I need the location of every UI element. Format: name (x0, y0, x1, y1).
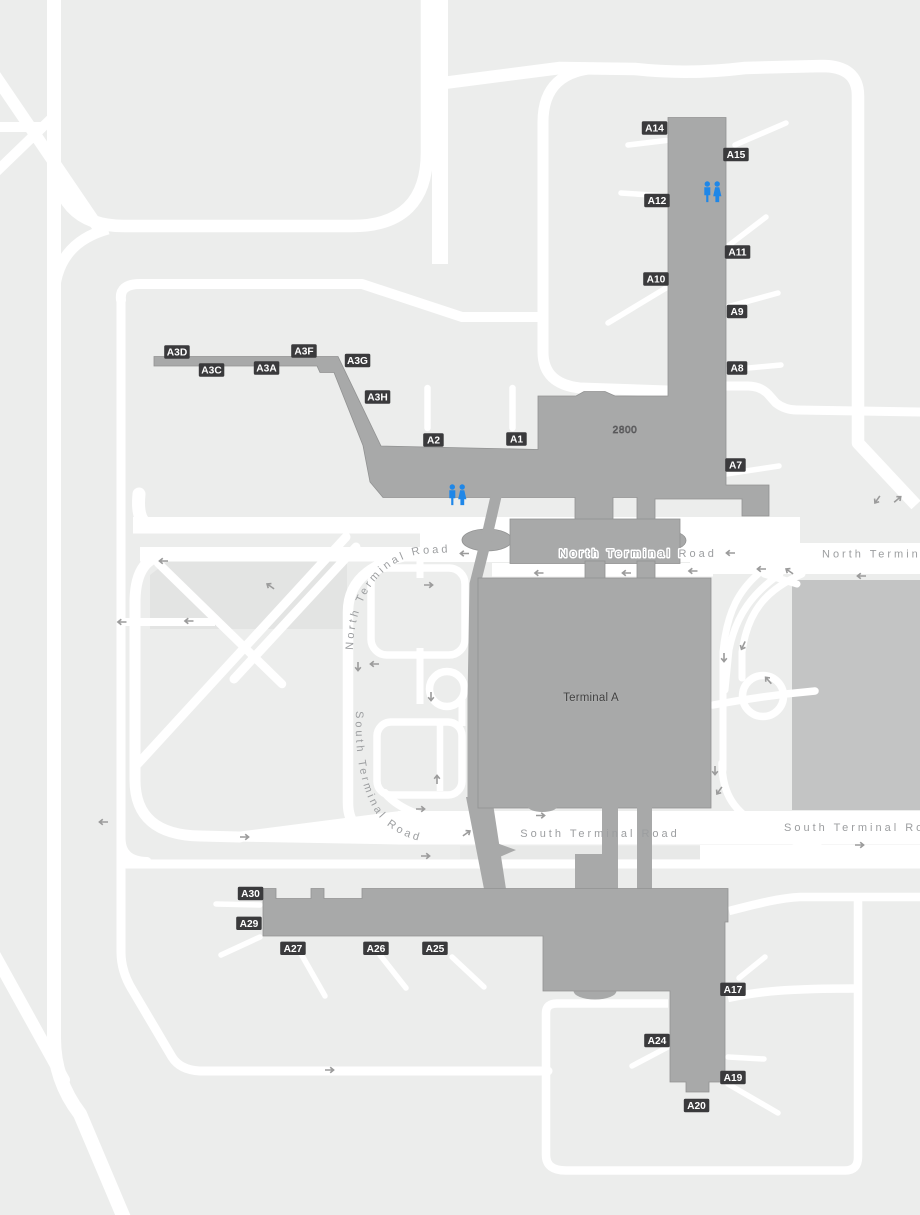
svg-text:A20: A20 (687, 1101, 706, 1112)
svg-text:A11: A11 (728, 248, 746, 259)
svg-text:A26: A26 (367, 944, 386, 955)
svg-text:2800: 2800 (613, 425, 638, 436)
svg-text:A19: A19 (724, 1073, 743, 1084)
svg-text:A30: A30 (241, 889, 260, 900)
svg-text:A3H: A3H (367, 393, 387, 404)
svg-text:A7: A7 (729, 461, 742, 472)
svg-text:South Terminal Road: South Terminal Road (520, 828, 680, 840)
svg-text:A9: A9 (730, 307, 743, 318)
svg-text:A17: A17 (724, 985, 743, 996)
svg-text:A3D: A3D (167, 348, 187, 359)
svg-text:North Terminal Road: North Terminal Road (822, 549, 920, 561)
svg-text:A25: A25 (426, 944, 445, 955)
svg-text:South Terminal Road: South Terminal Road (784, 822, 920, 834)
svg-text:A10: A10 (647, 275, 666, 286)
svg-text:A3C: A3C (201, 366, 222, 377)
svg-text:A24: A24 (648, 1036, 667, 1047)
svg-text:A29: A29 (240, 919, 259, 930)
svg-text:A3F: A3F (294, 347, 313, 358)
svg-text:A3A: A3A (256, 364, 277, 375)
svg-text:A1: A1 (510, 435, 523, 446)
svg-text:A15: A15 (727, 150, 746, 161)
svg-text:A14: A14 (645, 124, 664, 135)
svg-text:A2: A2 (427, 436, 440, 447)
svg-text:Terminal A: Terminal A (563, 692, 619, 704)
svg-text:A3G: A3G (347, 356, 368, 367)
svg-text:North Terminal Road: North Terminal Road (559, 548, 717, 560)
svg-text:A27: A27 (284, 944, 303, 955)
svg-text:A8: A8 (730, 364, 743, 375)
svg-text:A12: A12 (648, 196, 667, 207)
